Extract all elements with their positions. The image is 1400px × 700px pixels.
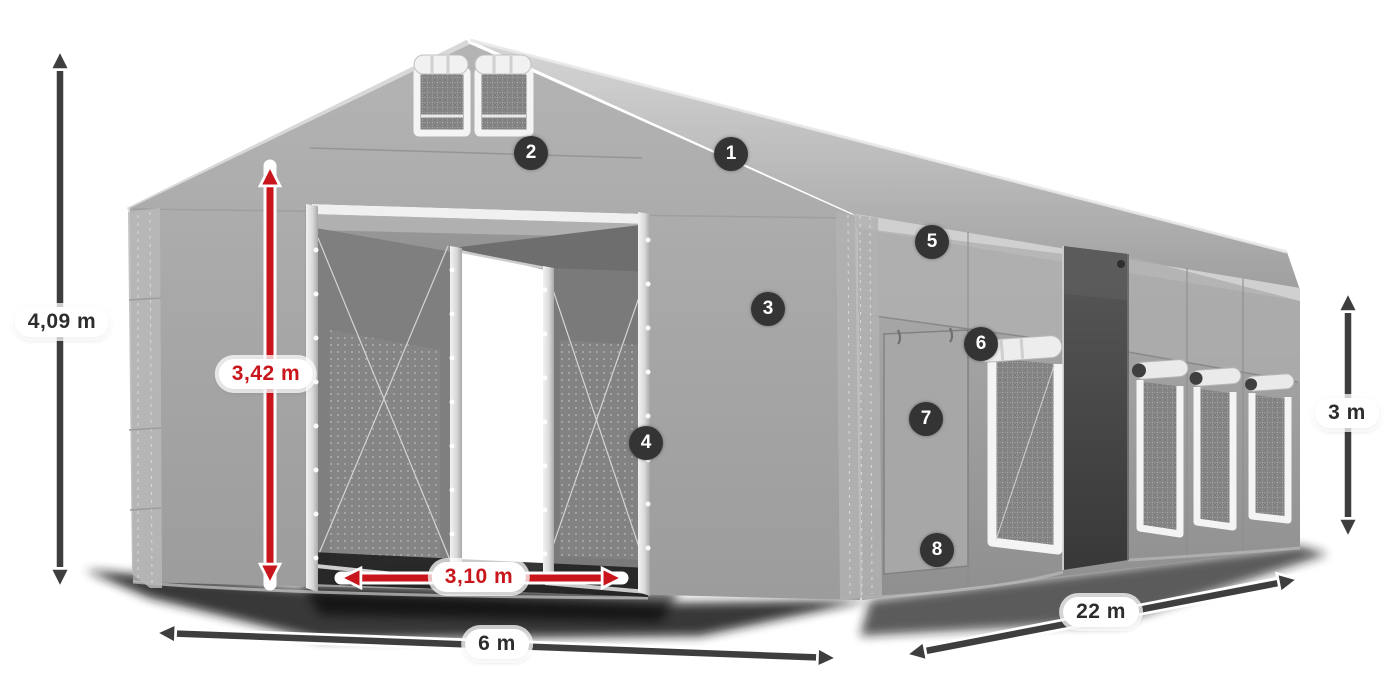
- feature-marker-4: 4: [629, 426, 663, 460]
- side-door-opening: [1063, 246, 1128, 570]
- feature-marker-5: 5: [915, 225, 949, 259]
- dimension-label-length: 22 m: [1063, 597, 1139, 627]
- gable-vent-left: [414, 55, 468, 133]
- feature-marker-8: 8: [920, 533, 954, 567]
- tent-dimensions-diagram: 4,09 m 3,42 m 3,10 m 6 m 22 m 3 m 1 2 3 …: [0, 0, 1400, 700]
- dimension-label-total-height: 4,09 m: [15, 307, 109, 337]
- corner-band-left: [128, 208, 162, 588]
- gable-vent-right: [475, 55, 531, 133]
- front-entrance-opening: [306, 204, 650, 597]
- feature-marker-3: 3: [751, 292, 785, 326]
- dimension-label-entrance-height: 3,42 m: [219, 359, 313, 389]
- feature-marker-2: 2: [514, 136, 548, 170]
- dimension-label-side-height: 3 m: [1315, 398, 1379, 428]
- dimension-label-entrance-width: 3,10 m: [432, 562, 526, 592]
- feature-marker-6: 6: [964, 327, 998, 361]
- feature-marker-1: 1: [714, 137, 748, 171]
- feature-marker-7: 7: [909, 402, 943, 436]
- corner-band-right: [836, 212, 882, 600]
- dimension-label-gable-width: 6 m: [465, 629, 529, 659]
- tent-illustration: [0, 0, 1400, 700]
